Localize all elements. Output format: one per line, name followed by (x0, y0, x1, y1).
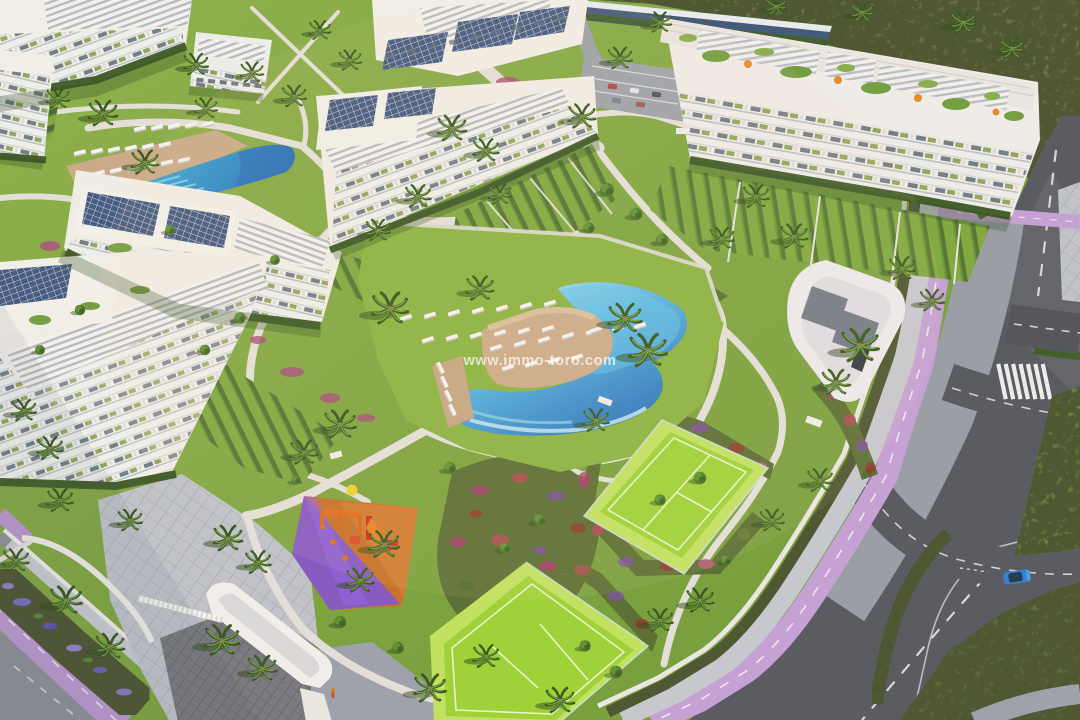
svg-text:www.immo-toro.com: www.immo-toro.com (462, 353, 616, 369)
